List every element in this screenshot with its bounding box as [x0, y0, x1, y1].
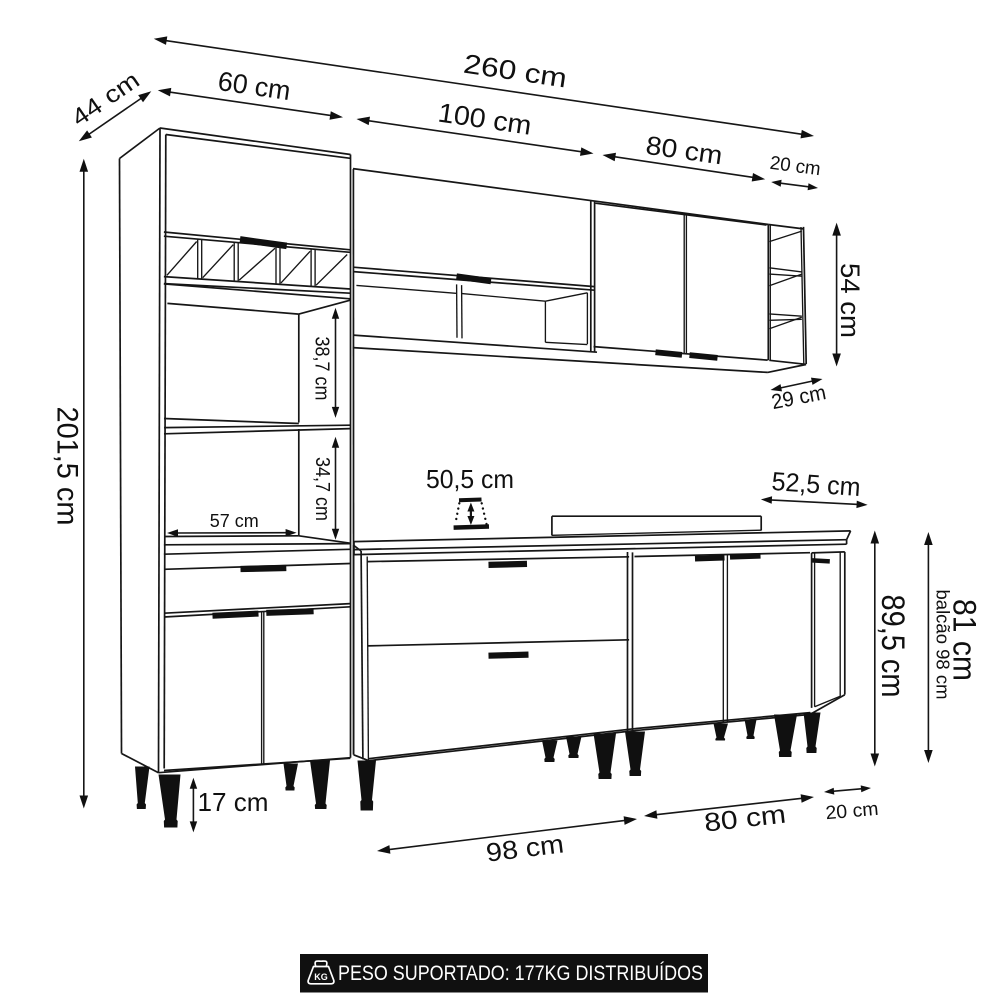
- svg-text:17 cm: 17 cm: [198, 787, 269, 817]
- svg-text:81 cm: 81 cm: [947, 599, 983, 681]
- svg-text:52,5 cm: 52,5 cm: [771, 466, 862, 502]
- svg-text:34,7 cm: 34,7 cm: [311, 457, 334, 521]
- svg-text:38,7 cm: 38,7 cm: [311, 337, 334, 401]
- svg-text:PESO SUPORTADO: 177KG DISTRIBU: PESO SUPORTADO: 177KG DISTRIBUÍDOS: [338, 960, 703, 985]
- svg-text:54 cm: 54 cm: [835, 263, 865, 338]
- svg-text:57 cm: 57 cm: [210, 511, 259, 531]
- svg-text:50,5 cm: 50,5 cm: [426, 464, 514, 494]
- svg-text:201,5 cm: 201,5 cm: [50, 407, 83, 526]
- svg-text:89,5 cm: 89,5 cm: [875, 595, 911, 698]
- svg-text:KG: KG: [314, 972, 328, 982]
